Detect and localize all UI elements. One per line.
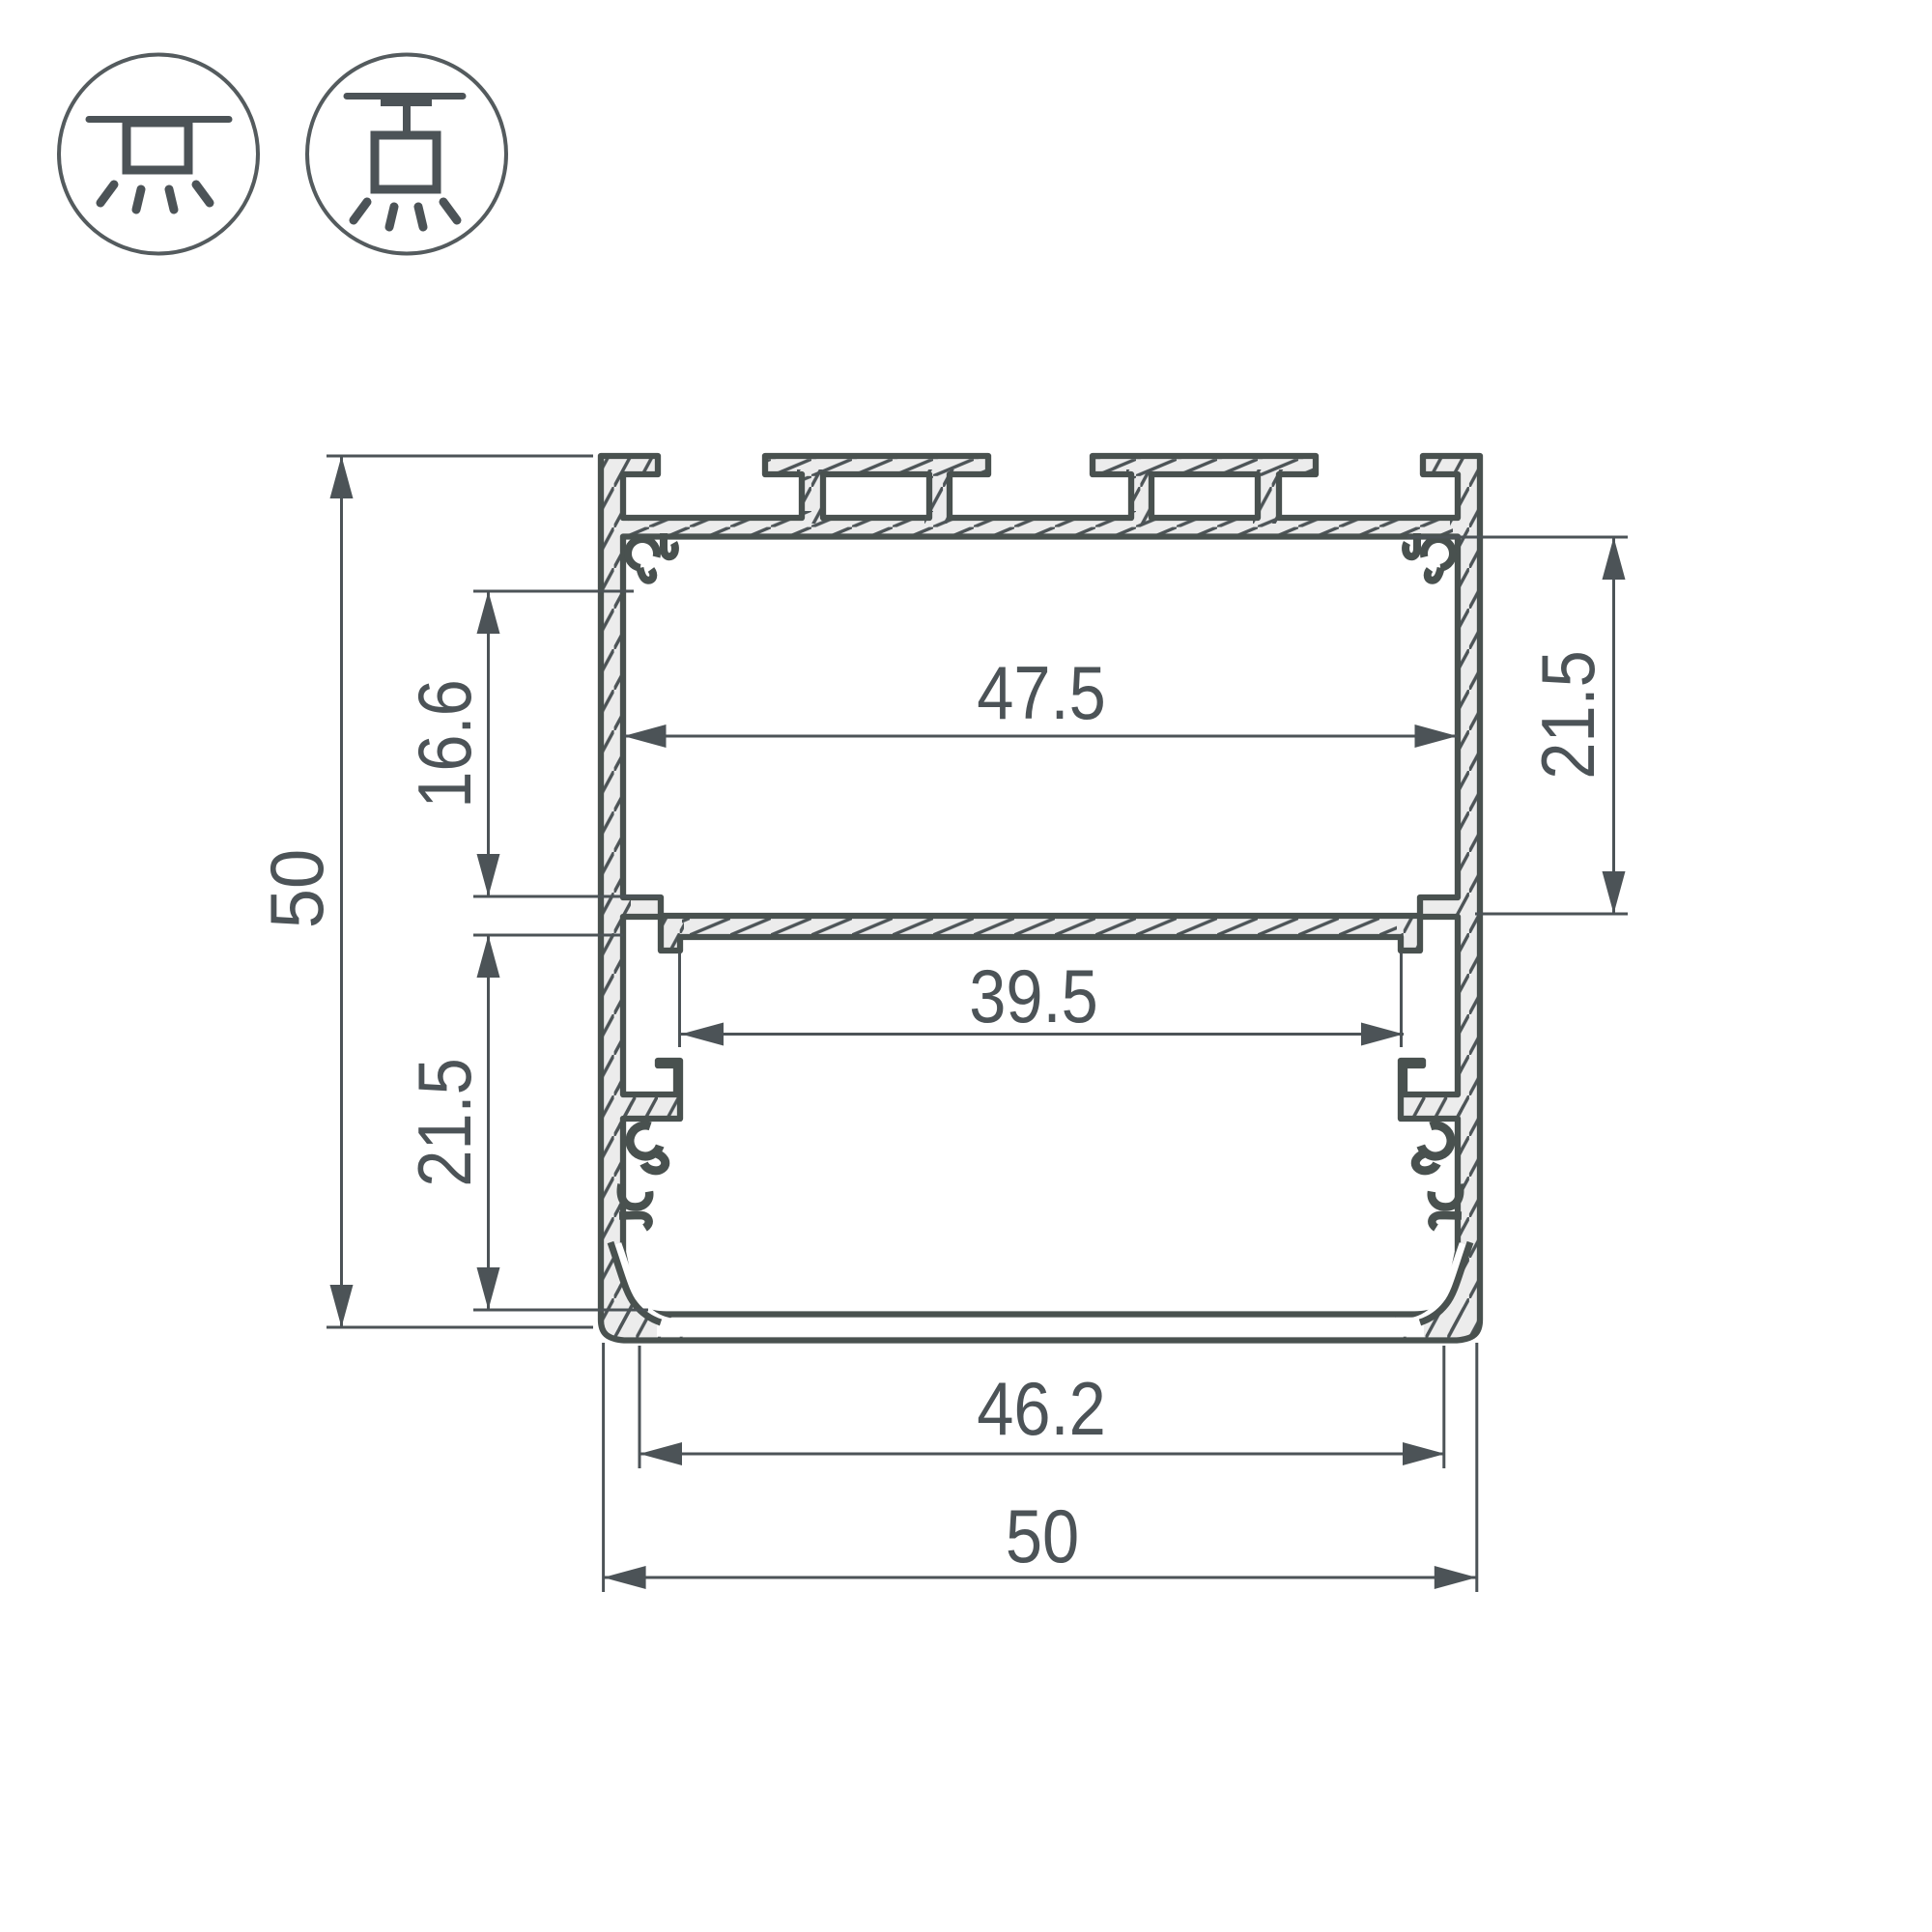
- svg-text:47.5: 47.5: [977, 650, 1106, 735]
- svg-text:50: 50: [1006, 1493, 1079, 1578]
- svg-text:21.5: 21.5: [1525, 650, 1610, 780]
- svg-text:21.5: 21.5: [402, 1058, 487, 1187]
- svg-text:39.5: 39.5: [969, 953, 1098, 1038]
- svg-text:16.6: 16.6: [402, 679, 487, 809]
- svg-text:46.2: 46.2: [977, 1366, 1106, 1451]
- svg-text:50: 50: [255, 849, 339, 928]
